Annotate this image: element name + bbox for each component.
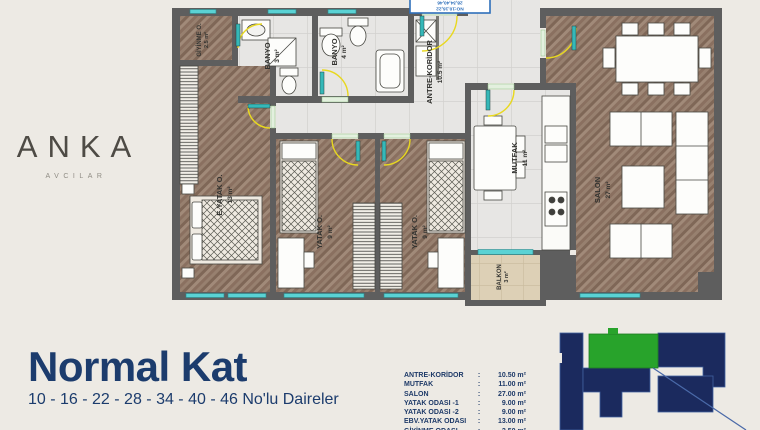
svg-text:E.YATAK O.: E.YATAK O.: [215, 174, 224, 215]
window-bedroom2: [384, 294, 458, 298]
building-footprint: [556, 328, 746, 430]
wardrobe-icon: [180, 66, 198, 184]
chair-icon: [648, 83, 664, 95]
nightstand-icon: [182, 268, 194, 278]
anka-logo-letters: A N K A: [14, 122, 134, 170]
door-leaf-icon: [320, 72, 324, 94]
door-leaf-icon: [236, 24, 240, 46]
logo-letter: A: [106, 131, 137, 162]
door-leaf-icon: [572, 26, 576, 50]
legend-row: YATAK ODASI -1 : 9.00 m²: [404, 399, 526, 408]
pillow-icon: [192, 202, 202, 228]
window-bedroom1: [284, 294, 364, 298]
chair-icon: [699, 48, 711, 68]
svg-text:GİYİNME O.: GİYİNME O.: [196, 23, 203, 57]
door-leaf-icon: [248, 104, 270, 108]
svg-text:9 m²: 9 m²: [422, 224, 429, 238]
svg-text:YATAK O.: YATAK O.: [410, 215, 419, 249]
title-block: Normal Kat 10 - 16 - 22 - 28 - 34 - 40 -…: [28, 345, 339, 409]
toilet-icon: [280, 68, 298, 76]
chair-icon: [674, 23, 690, 35]
chair-icon: [484, 116, 502, 125]
legend-row: ANTRE-KORİDOR : 10.50 m²: [404, 371, 526, 380]
floor-plan: GİYİNME O. 2.5 m² BANYO 3 m² BANYO 4 m² …: [172, 0, 722, 312]
area-legend: ANTRE-KORİDOR : 10.50 m² MUTFAK : 11.00 …: [404, 371, 526, 430]
window-bath1: [268, 10, 296, 14]
svg-text:NO:10,16,22: NO:10,16,22: [436, 6, 464, 12]
svg-text:3 m²: 3 m²: [503, 271, 510, 282]
svg-text:ANTRE-KORİDOR: ANTRE-KORİDOR: [425, 40, 434, 104]
window-bath2: [328, 10, 356, 14]
page-title: Normal Kat: [28, 345, 339, 389]
legend-row: SALON : 27.00 m²: [404, 390, 526, 399]
kitchen-counter-icon: [542, 96, 570, 250]
logo-subtitle: AVCILAR: [14, 173, 134, 180]
stove-icon: [545, 192, 567, 226]
svg-text:BANYO: BANYO: [330, 38, 339, 65]
logo-letter: K: [75, 131, 106, 162]
svg-text:MUTFAK: MUTFAK: [510, 142, 519, 174]
toilet-icon: [348, 18, 368, 26]
svg-text:BANYO: BANYO: [263, 42, 272, 69]
desk-icon: [278, 238, 304, 288]
dining-table-icon: [616, 36, 698, 82]
svg-text:2.5 m²: 2.5 m²: [203, 32, 210, 48]
nightstand-icon: [182, 184, 194, 194]
chair-icon: [622, 23, 638, 35]
svg-text:3 m²: 3 m²: [274, 48, 281, 62]
svg-text:YATAK O.: YATAK O.: [315, 215, 324, 249]
apartment-number-sign: NO:10,16,22 28,34,40,46: [410, 0, 490, 13]
svg-text:BALKON: BALKON: [497, 264, 503, 290]
svg-text:11 m²: 11 m²: [522, 149, 529, 166]
highlighted-unit: [589, 334, 658, 368]
door-leaf-icon: [486, 90, 490, 110]
desk-icon: [438, 238, 464, 288]
wardrobe-icon: [380, 203, 402, 289]
door-leaf-icon: [420, 16, 424, 36]
building-block: [560, 333, 583, 430]
window-dressing: [190, 10, 216, 14]
svg-text:9 m²: 9 m²: [327, 224, 334, 238]
svg-text:10.5 m²: 10.5 m²: [437, 60, 444, 83]
anka-logo: A N K A AVCILAR: [14, 122, 134, 180]
chair-icon: [428, 252, 438, 268]
pillow-icon: [429, 143, 463, 159]
pillow-icon: [192, 234, 202, 260]
door-leaf-icon: [356, 141, 360, 161]
key-plan: [556, 326, 760, 430]
chair-icon: [603, 48, 615, 68]
chair-icon: [674, 83, 690, 95]
kitchen-sink-icon: [545, 126, 567, 143]
chair-icon: [648, 23, 664, 35]
chair-icon: [304, 252, 314, 268]
svg-text:4 m²: 4 m²: [341, 44, 348, 58]
legend-row: MUTFAK : 11.00 m²: [404, 380, 526, 389]
sofa-icon: [676, 112, 708, 214]
chair-icon: [484, 191, 502, 200]
svg-text:SALON: SALON: [593, 177, 602, 203]
window-master-2: [228, 294, 266, 298]
svg-text:28,34,40,46: 28,34,40,46: [437, 0, 463, 6]
legend-row: EBV.YATAK ODASI : 13.00 m²: [404, 417, 526, 426]
wardrobe-icon: [353, 203, 375, 289]
logo-letter: N: [42, 131, 74, 162]
svg-text:27 m²: 27 m²: [605, 181, 612, 199]
page: A N K A AVCILAR: [0, 0, 760, 430]
page-subtitle: 10 - 16 - 22 - 28 - 34 - 40 - 46 No'lu D…: [28, 391, 339, 409]
legend-row: YATAK ODASI -2 : 9.00 m²: [404, 408, 526, 417]
logo-letter: A: [12, 131, 43, 162]
coffee-table-icon: [622, 166, 664, 208]
window-master-1: [186, 294, 224, 298]
building-block: [658, 376, 713, 412]
door-leaf-icon: [382, 141, 386, 161]
svg-text:13 m²: 13 m²: [227, 186, 234, 204]
window-salon: [580, 294, 640, 298]
pillow-icon: [282, 143, 316, 159]
chair-icon: [622, 83, 638, 95]
window-balcony-door: [478, 250, 533, 255]
building-block: [583, 368, 650, 417]
